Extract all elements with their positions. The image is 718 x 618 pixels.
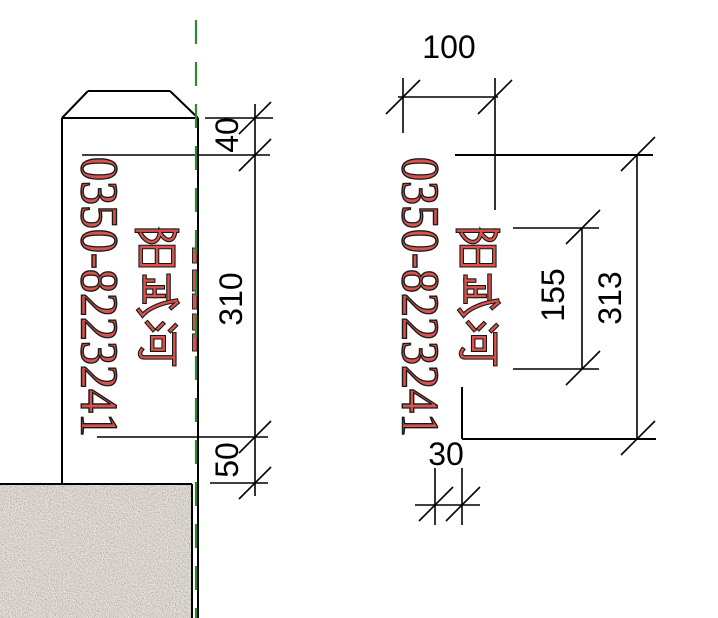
cad-drawing-canvas[interactable]: 0350-8223241 0350-8223241 阳武河	[0, 0, 718, 618]
granite-foundation	[0, 484, 192, 618]
river-name-left-view: 阳武河	[127, 220, 187, 370]
dim-label-40: 40	[210, 117, 244, 153]
dim-label-310: 310	[214, 272, 248, 325]
dim-offset-30	[415, 468, 480, 525]
dim-label-155: 155	[536, 268, 570, 321]
dim-label-313: 313	[593, 271, 627, 324]
dim-label-100: 100	[422, 30, 475, 64]
dim-label-50: 50	[210, 442, 244, 478]
clipped-text-marks	[193, 248, 198, 351]
river-name-right-view: 阳武河	[448, 220, 508, 370]
phone-number-right-view: 0350-8223241	[395, 137, 443, 457]
dim-label-30: 30	[428, 437, 464, 471]
phone-number-left-view: 0350-8223241	[74, 137, 122, 457]
